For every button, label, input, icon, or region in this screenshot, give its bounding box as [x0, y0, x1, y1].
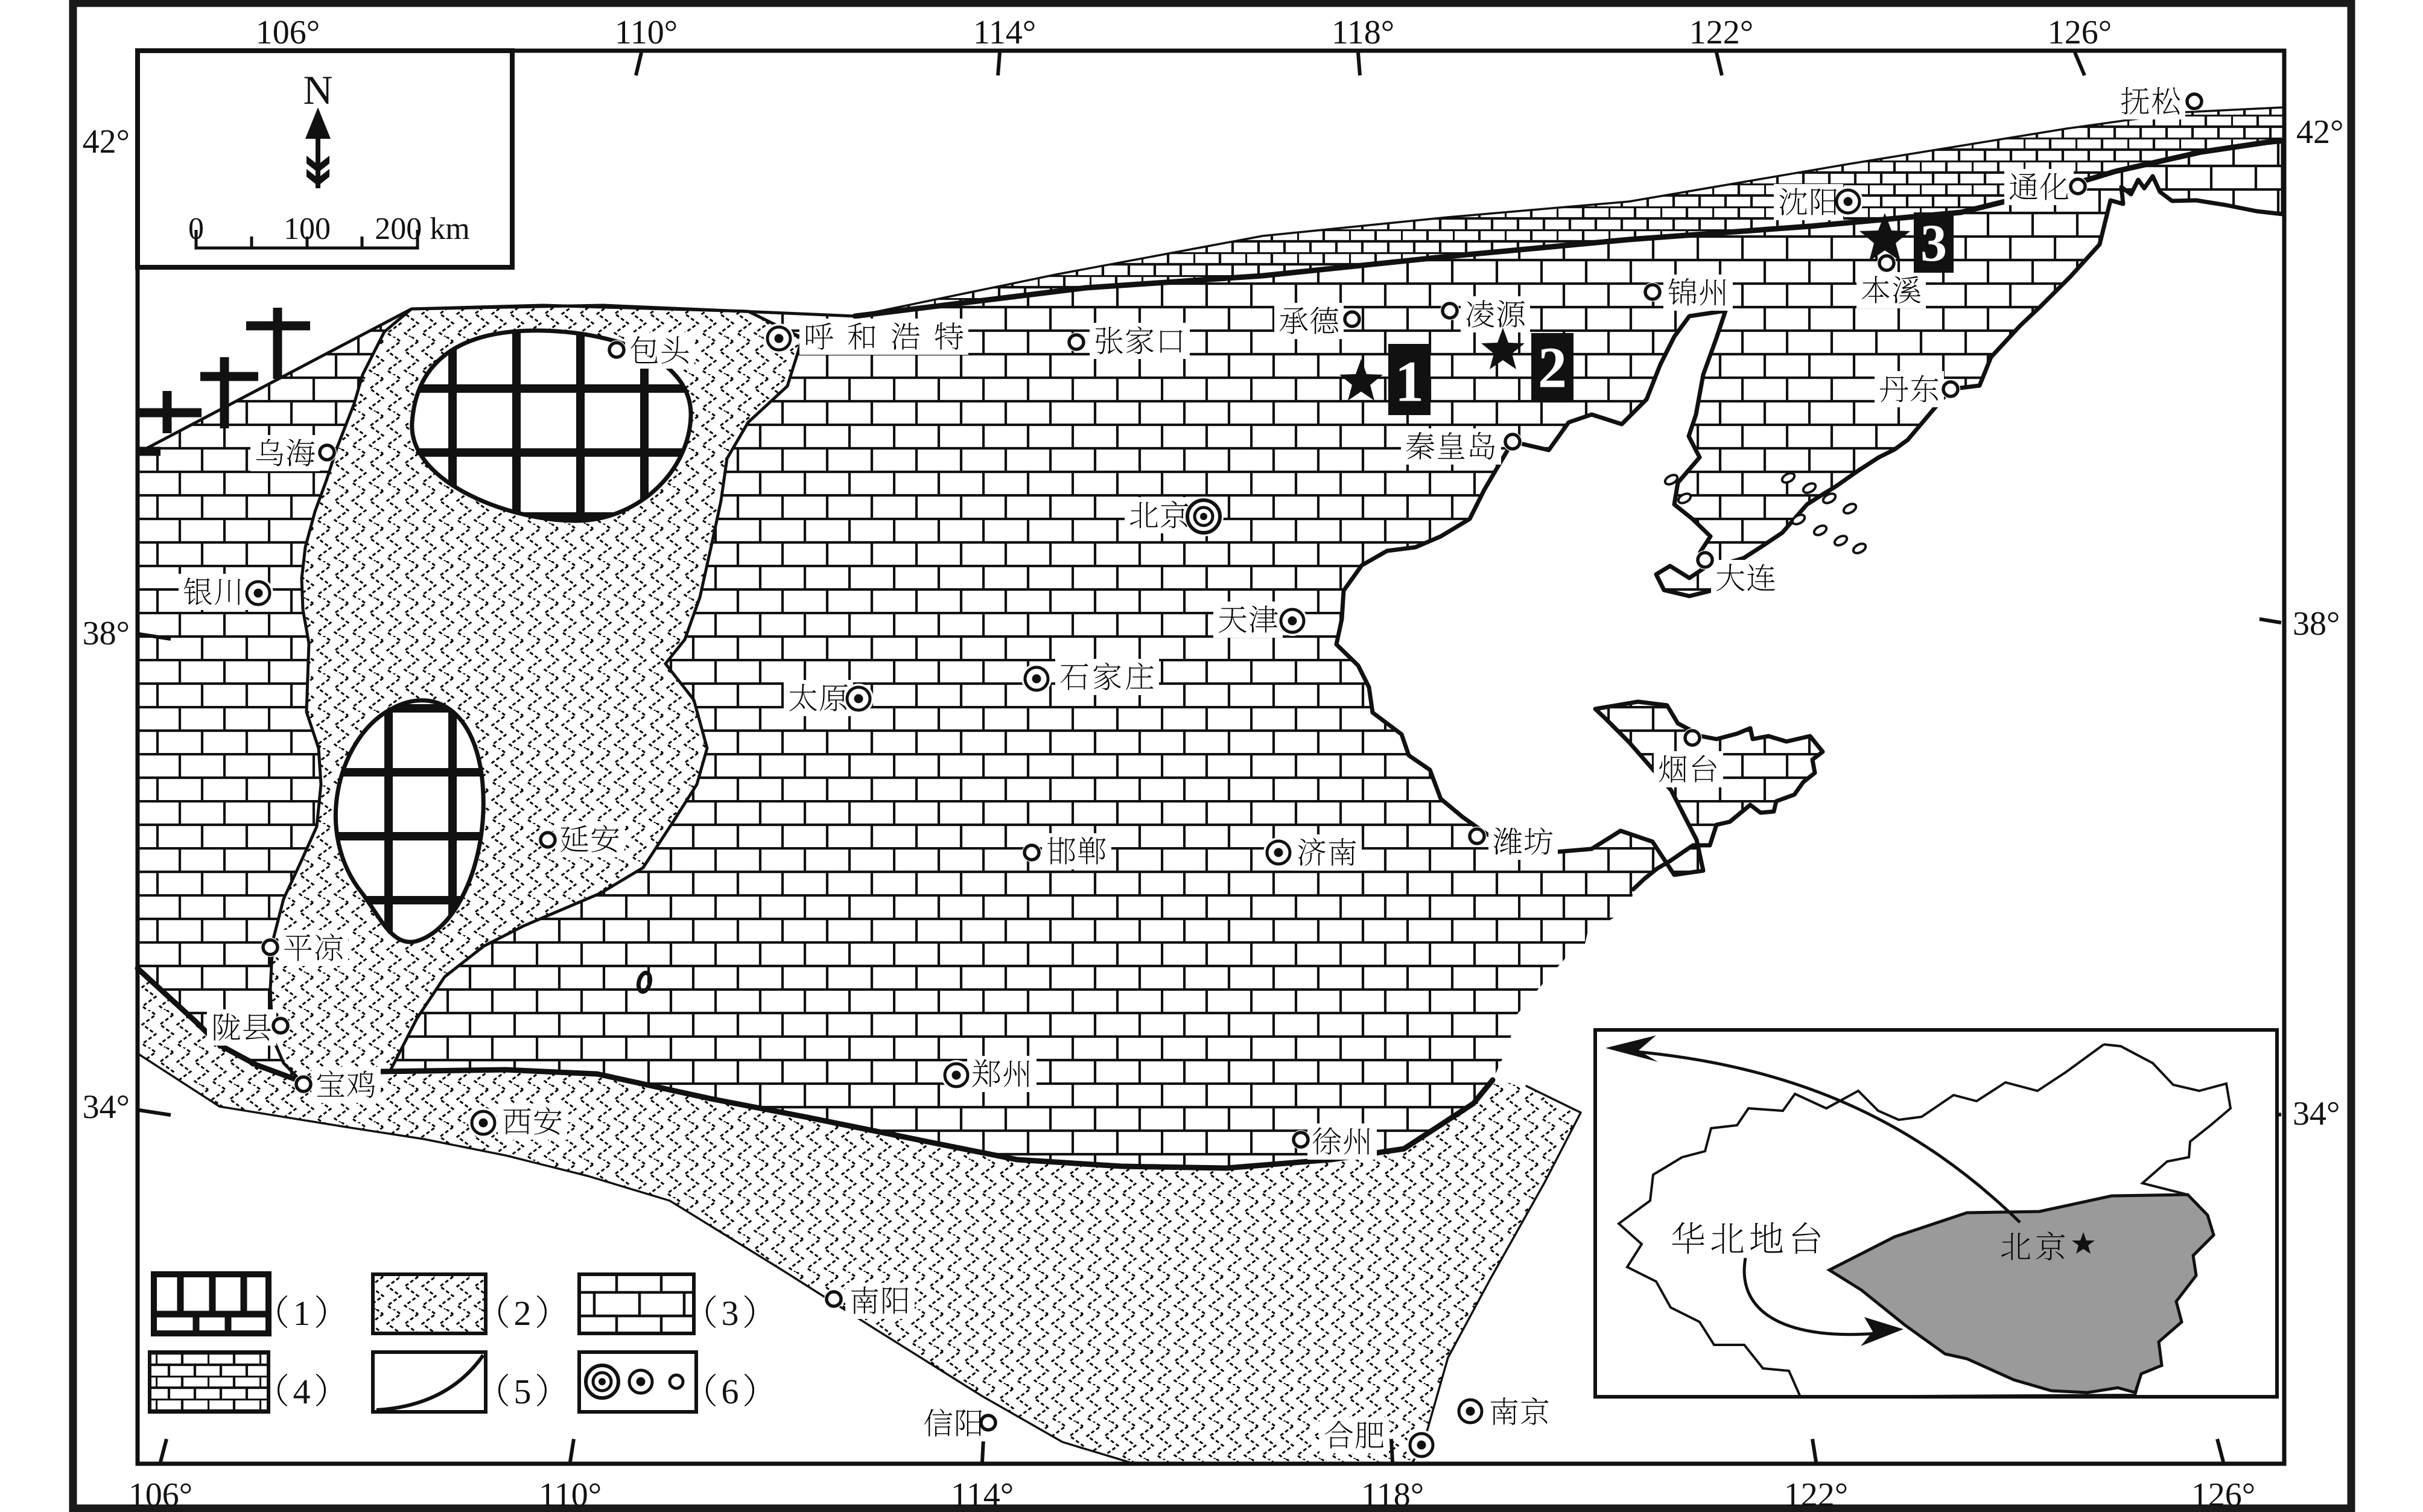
svg-text:106°: 106° [129, 1476, 192, 1512]
svg-text:110°: 110° [539, 1476, 602, 1512]
svg-text:5: 5 [514, 1372, 532, 1411]
svg-text:100: 100 [284, 212, 331, 246]
svg-text:114°: 114° [951, 1476, 1014, 1512]
svg-text:118°: 118° [1332, 14, 1394, 51]
svg-text:1: 1 [293, 1294, 311, 1333]
svg-text:3: 3 [1920, 214, 1947, 273]
svg-text:114°: 114° [973, 14, 1036, 51]
svg-text:106°: 106° [256, 14, 320, 51]
svg-text:126°: 126° [2191, 1476, 2255, 1512]
svg-text:34°: 34° [2293, 1095, 2340, 1132]
svg-text:118°: 118° [1361, 1476, 1424, 1512]
svg-text:N: N [303, 67, 332, 113]
svg-text:34°: 34° [83, 1088, 130, 1126]
svg-text:126°: 126° [2048, 14, 2112, 51]
svg-text:38°: 38° [2293, 605, 2340, 643]
svg-text:2: 2 [514, 1294, 532, 1333]
svg-text:1: 1 [1395, 349, 1424, 413]
svg-text:200 km: 200 km [375, 212, 469, 246]
svg-text:110°: 110° [615, 14, 678, 51]
svg-text:4: 4 [293, 1372, 311, 1411]
svg-text:3: 3 [722, 1294, 739, 1333]
svg-text:122°: 122° [1689, 14, 1753, 51]
svg-text:6: 6 [722, 1372, 739, 1411]
svg-text:122°: 122° [1784, 1476, 1848, 1512]
svg-text:2: 2 [1538, 335, 1567, 400]
svg-text:42°: 42° [2296, 113, 2343, 151]
svg-text:38°: 38° [83, 615, 130, 652]
svg-text:42°: 42° [83, 123, 130, 160]
svg-text:0: 0 [188, 212, 204, 246]
